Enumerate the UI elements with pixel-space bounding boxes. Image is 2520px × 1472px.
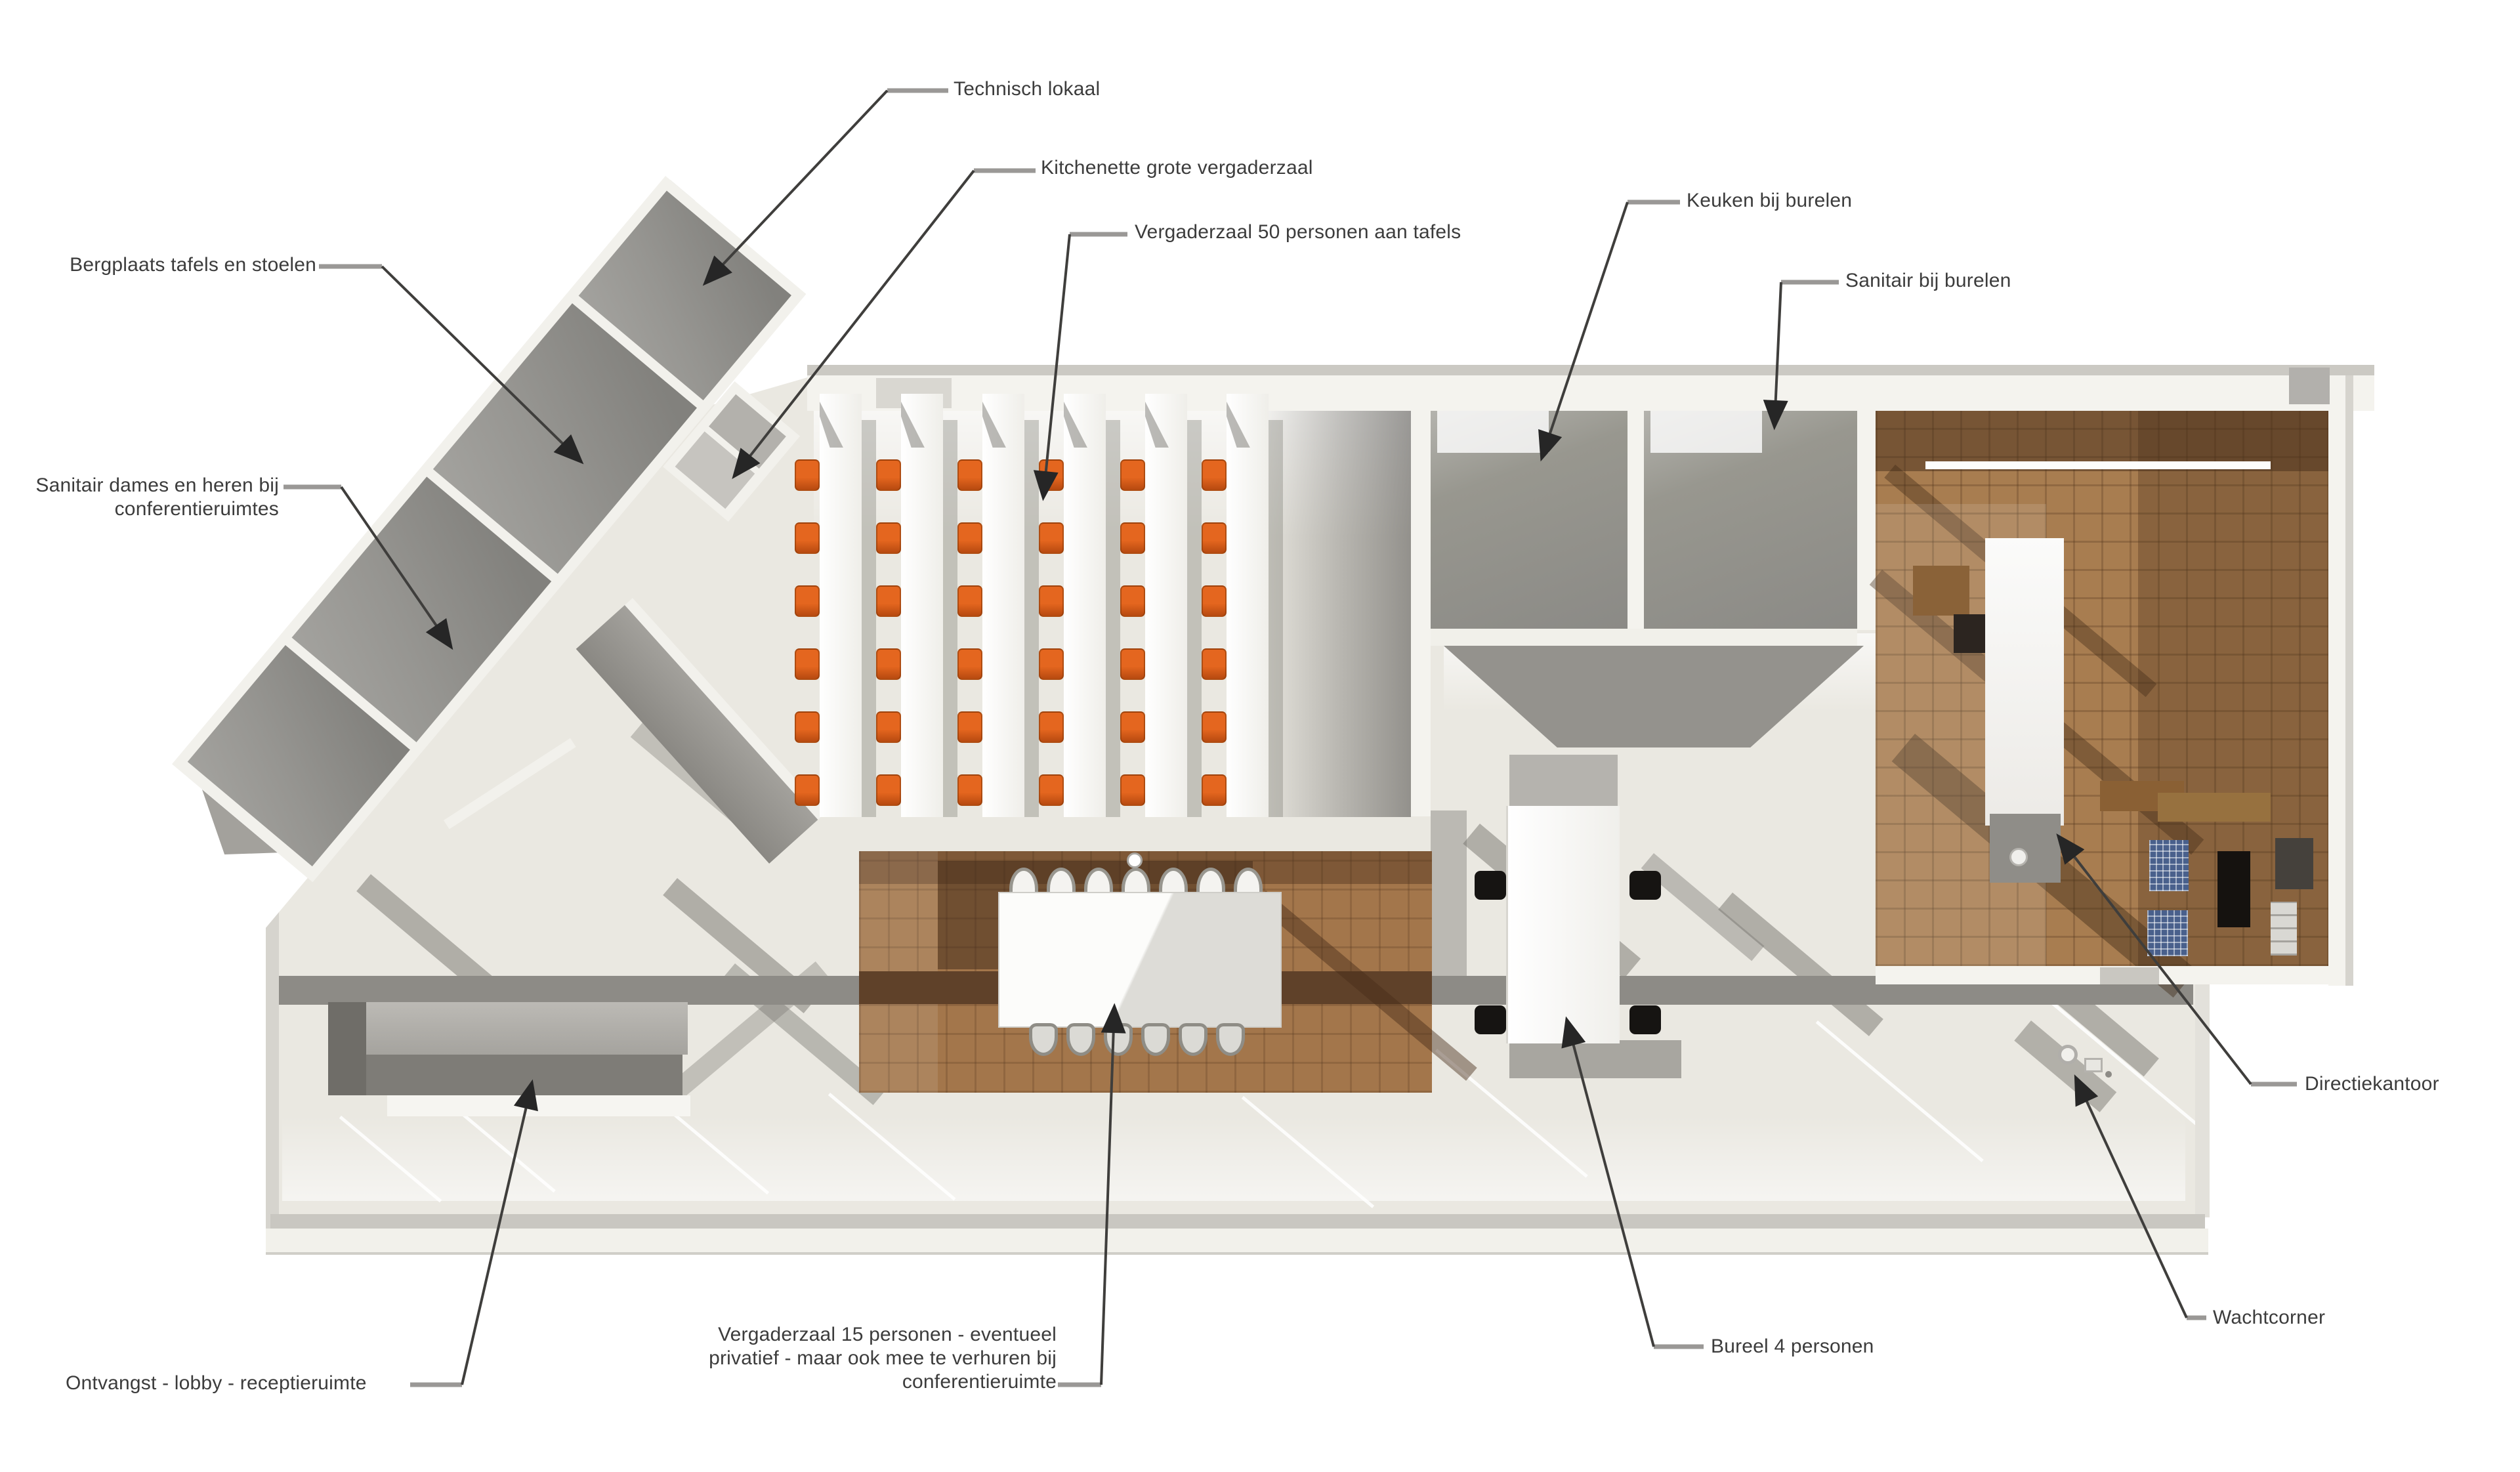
label-wachtcorner: Wachtcorner <box>2213 1306 2325 1330</box>
label-kitchenette: Kitchenette grote vergaderzaal <box>1041 156 1313 180</box>
label-directiekantoor: Directiekantoor <box>2305 1072 2439 1096</box>
label-ontvangst: Ontvangst - lobby - receptieruimte <box>66 1372 367 1395</box>
label-technisch-lokaal: Technisch lokaal <box>954 77 1100 101</box>
floor-plan-canvas: Technisch lokaal Kitchenette grote verga… <box>0 0 2520 1472</box>
label-keuken: Keuken bij burelen <box>1687 189 1852 213</box>
label-vergaderzaal-15: Vergaderzaal 15 personen - eventueel pri… <box>643 1323 1057 1394</box>
label-sanitair-burelen: Sanitair bij burelen <box>1845 269 2011 293</box>
label-sanitair-dames-heren: Sanitair dames en heren bij conferentier… <box>0 474 279 521</box>
label-bureel-4: Bureel 4 personen <box>1711 1335 1874 1358</box>
label-vergaderzaal-50: Vergaderzaal 50 personen aan tafels <box>1135 221 1461 244</box>
label-bergplaats: Bergplaats tafels en stoelen <box>34 253 316 277</box>
